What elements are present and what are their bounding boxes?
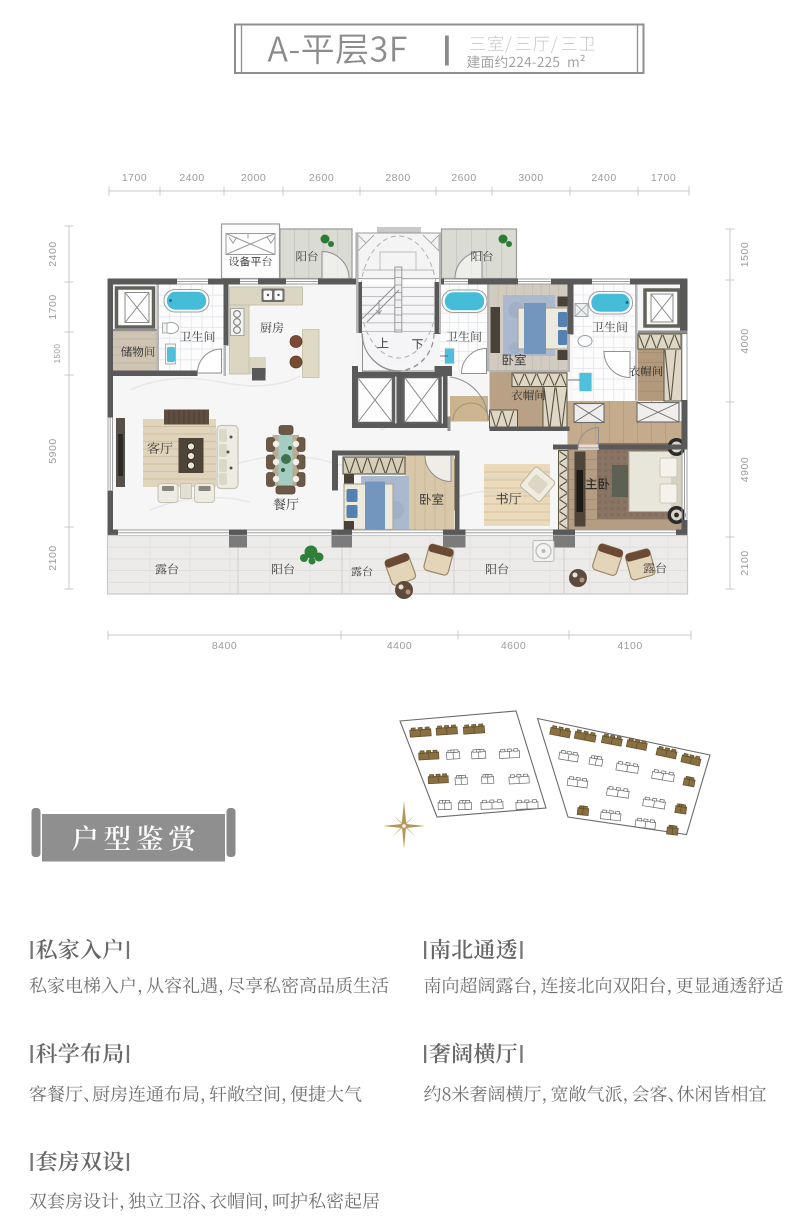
svg-text:4400: 4400	[387, 640, 412, 652]
svg-text:1500: 1500	[53, 344, 62, 364]
svg-text:2100: 2100	[739, 550, 751, 575]
svg-text:4900: 4900	[739, 457, 751, 482]
svg-text:4000: 4000	[739, 328, 751, 353]
svg-text:2600: 2600	[451, 172, 476, 184]
svg-text:2800: 2800	[385, 172, 410, 184]
svg-text:1700: 1700	[651, 172, 676, 184]
svg-text:1700: 1700	[47, 294, 59, 319]
svg-text:4100: 4100	[617, 640, 642, 652]
svg-text:2000: 2000	[241, 172, 266, 184]
svg-text:2400: 2400	[47, 241, 59, 266]
svg-text:2600: 2600	[309, 172, 334, 184]
svg-text:2400: 2400	[591, 172, 616, 184]
svg-text:5900: 5900	[47, 438, 59, 463]
svg-text:2100: 2100	[47, 545, 59, 570]
svg-text:1700: 1700	[122, 172, 147, 184]
svg-text:4600: 4600	[501, 640, 526, 652]
svg-text:3000: 3000	[518, 172, 543, 184]
svg-text:8400: 8400	[212, 640, 237, 652]
svg-text:2400: 2400	[179, 172, 204, 184]
svg-text:1500: 1500	[739, 242, 751, 267]
